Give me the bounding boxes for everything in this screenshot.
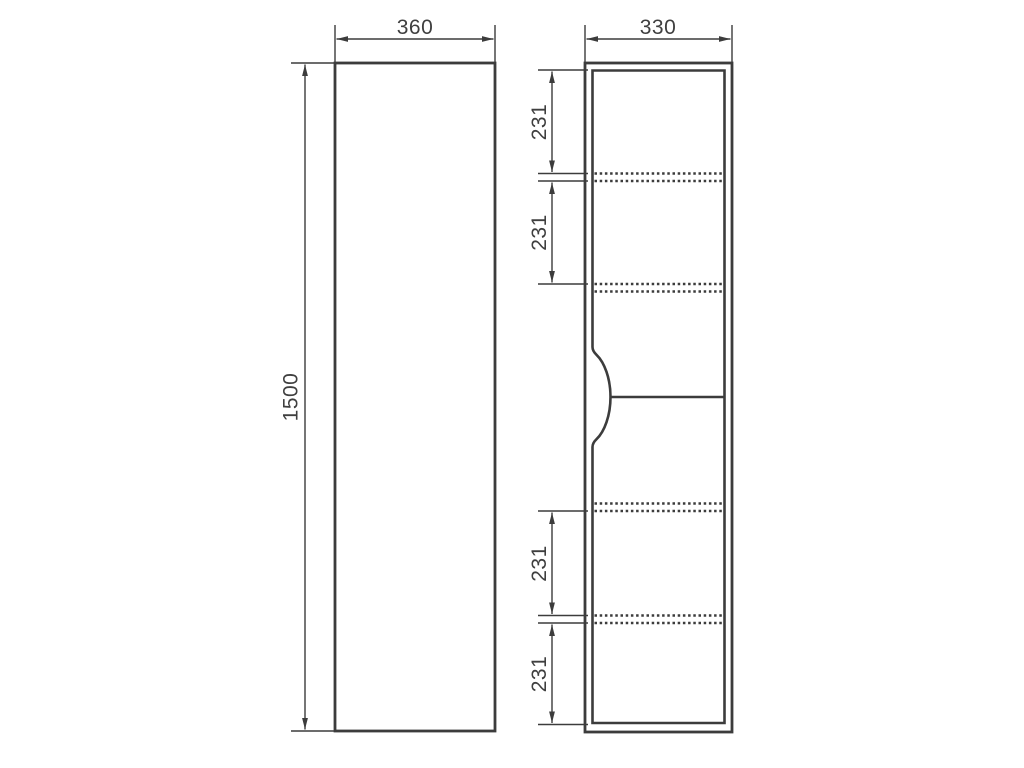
front-width-label: 360 [397,16,434,39]
front-view: 360 1500 [280,16,496,731]
cabinet-dimension-drawing: 360 1500 [0,0,1024,768]
technical-drawing-canvas: 360 1500 [0,0,1024,768]
spacing-label-3: 231 [528,545,551,582]
front-view-outline [335,63,495,731]
spacing-label-1: 231 [528,104,551,141]
spacing-label-4: 231 [528,656,551,693]
front-height-label: 1500 [280,373,303,422]
side-depth-label: 330 [640,16,677,39]
spacing-label-2: 231 [528,214,551,251]
side-view: 330 231 231 231 231 [528,16,732,732]
